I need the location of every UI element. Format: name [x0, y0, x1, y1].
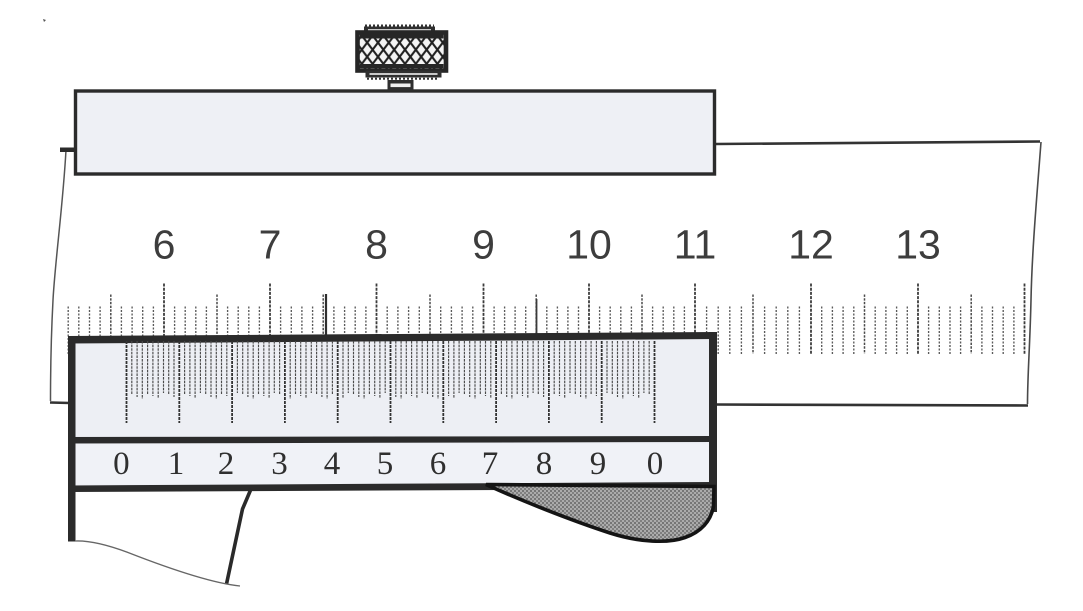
svg-text:9: 9: [472, 222, 495, 268]
svg-text:8: 8: [536, 446, 553, 482]
svg-text:0: 0: [647, 446, 664, 482]
svg-text:4: 4: [324, 446, 341, 482]
svg-text:7: 7: [259, 222, 282, 268]
svg-text:13: 13: [895, 222, 941, 268]
svg-text:0: 0: [113, 446, 130, 482]
svg-text:10: 10: [566, 222, 612, 268]
svg-text:8: 8: [365, 222, 388, 268]
svg-text:5: 5: [377, 446, 394, 482]
svg-text:6: 6: [153, 222, 176, 268]
svg-text:9: 9: [590, 446, 607, 482]
svg-text:7: 7: [482, 446, 499, 482]
svg-text:3: 3: [271, 446, 288, 482]
svg-text:12: 12: [788, 222, 834, 268]
svg-text:6: 6: [430, 446, 447, 482]
svg-text:11: 11: [674, 222, 717, 268]
svg-text:2: 2: [218, 446, 235, 482]
svg-text:1: 1: [168, 446, 185, 482]
